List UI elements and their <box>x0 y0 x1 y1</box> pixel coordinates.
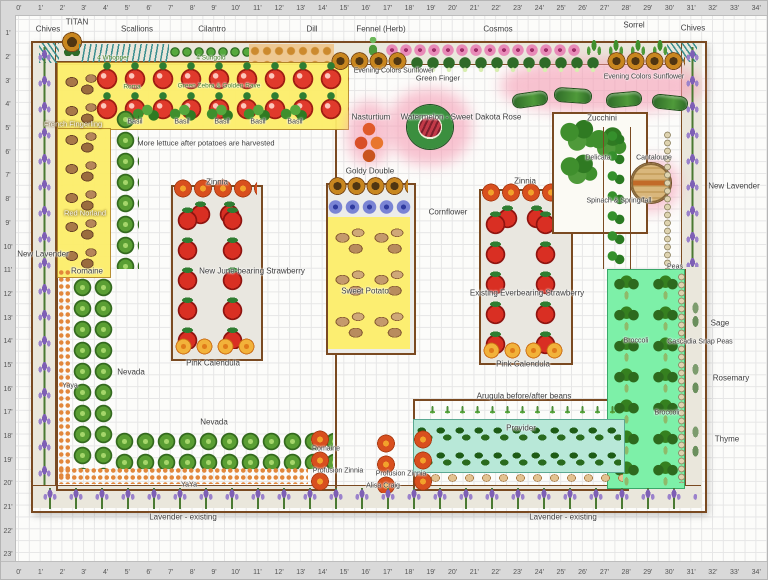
ruler-tick: 26' <box>572 5 594 12</box>
ruler-tick: 24' <box>529 569 551 576</box>
ruler-tick: 18' <box>1 425 15 449</box>
label-sorrel: Sorrel <box>623 21 644 30</box>
label-alisa-craig: Alisa Craig <box>366 483 400 490</box>
label-basil-2: Basil <box>174 119 189 126</box>
ruler-tick: 11' <box>247 569 269 576</box>
sage-icon[interactable] <box>688 299 703 331</box>
label-dill: Dill <box>306 25 317 34</box>
ruler-tick: 25' <box>550 569 572 576</box>
ruler-tick: 7' <box>1 164 15 188</box>
ruler-tick: 16' <box>355 569 377 576</box>
ruler-tick: 34' <box>745 569 767 576</box>
cornflower-row[interactable] <box>327 198 411 216</box>
ruler-top: 0'1'2'3'4'5'6'7'8'9'10'11'12'13'14'15'16… <box>1 1 768 16</box>
label-basil-3: Basil <box>214 119 229 126</box>
label-new-lavender-right: New Lavender <box>708 182 760 191</box>
ruler-tick: 28' <box>615 569 637 576</box>
label-yaya-vertical: Yaya <box>62 383 77 390</box>
ruler-tick: 32' <box>702 5 724 12</box>
ruler-tick: 20' <box>1 472 15 496</box>
label-green-finger: Green Finger <box>416 74 460 83</box>
strawberry-left-col-a[interactable] <box>173 203 202 349</box>
label-cosmos: Cosmos <box>483 25 512 34</box>
label-romaine-bottom: Romaine <box>312 446 340 453</box>
ruler-tick: 34' <box>745 5 767 12</box>
ruler-tick: 5' <box>116 5 138 12</box>
label-june-strawberry: New June-bearing Strawberry <box>199 267 305 276</box>
label-romaine-left: Romaine <box>71 267 103 276</box>
snap-pea-trellis[interactable] <box>677 273 685 483</box>
carrot-column-yaya[interactable] <box>58 269 71 479</box>
ruler-tick: 17' <box>377 5 399 12</box>
ruler-tick: 27' <box>594 569 616 576</box>
label-nevada-horizontal: Nevada <box>200 418 228 427</box>
label-cascadia-snap-peas: Cascadia Snap Peas <box>667 339 732 346</box>
onion-row-alisa-craig[interactable] <box>427 469 623 487</box>
ruler-tick: 22' <box>485 5 507 12</box>
ruler-tick: 3' <box>73 569 95 576</box>
label-nasturtium: Nasturtium <box>352 113 391 122</box>
ruler-tick: 21' <box>463 569 485 576</box>
label-tomato-count-1: 4 Whopper <box>97 55 129 62</box>
ruler-tick: 4' <box>1 93 15 117</box>
rosemary-icon[interactable] <box>688 357 703 401</box>
garden-planner-canvas: 0'1'2'3'4'5'6'7'8'9'10'11'12'13'14'15'16… <box>0 0 768 580</box>
ruler-tick: 7' <box>160 5 182 12</box>
ruler-tick: 15' <box>333 5 355 12</box>
ruler-tick: 6' <box>1 140 15 164</box>
ruler-tick: 32' <box>702 569 724 576</box>
label-peas: Peas <box>667 264 683 271</box>
ruler-tick: 14' <box>1 330 15 354</box>
ruler-tick: 14' <box>312 5 334 12</box>
ruler-tick: 6' <box>138 569 160 576</box>
label-new-lavender-left: New Lavender <box>17 250 69 259</box>
ruler-tick: 25' <box>550 5 572 12</box>
ruler-tick: 2' <box>1 46 15 70</box>
label-fennel: Fennel (Herb) <box>356 25 405 34</box>
lavender-row-right[interactable] <box>682 47 703 267</box>
ruler-tick: 17' <box>377 569 399 576</box>
label-zucchini: Zucchini <box>587 114 617 123</box>
ruler-tick: 18' <box>398 569 420 576</box>
ruler-tick: 31' <box>680 569 702 576</box>
ruler-tick: 31' <box>680 5 702 12</box>
label-tomato-var-1: Roma <box>123 84 140 91</box>
ruler-tick: 22' <box>485 569 507 576</box>
zinnia-column-1[interactable] <box>310 429 330 491</box>
pea-trellis-column[interactable] <box>663 131 673 269</box>
label-sage: Sage <box>711 319 730 328</box>
ruler-tick: 13' <box>290 5 312 12</box>
ruler-tick: 24' <box>529 5 551 12</box>
ruler-tick: 3' <box>1 69 15 93</box>
label-lavender-existing-right: Lavender - existing <box>529 513 597 522</box>
ruler-tick: 4' <box>95 569 117 576</box>
potato-column[interactable] <box>57 71 105 269</box>
ruler-tick: 27' <box>594 5 616 12</box>
label-chives-right: Chives <box>681 24 705 33</box>
ruler-tick: 0' <box>8 5 30 12</box>
arugula-row[interactable] <box>425 401 625 419</box>
calendula-row-c[interactable] <box>481 342 567 359</box>
ruler-tick: 26' <box>572 569 594 576</box>
label-goldy-double: Goldy Double <box>346 167 394 176</box>
ruler-tick: 19' <box>1 448 15 472</box>
lettuce-l-horizontal[interactable] <box>114 431 333 469</box>
ruler-tick: 9' <box>203 5 225 12</box>
zucchini-fruit-icon[interactable] <box>555 88 592 103</box>
lettuce-column[interactable] <box>115 109 139 269</box>
ruler-tick: 8' <box>1 188 15 212</box>
ruler-tick: 16' <box>355 5 377 12</box>
label-watermelon: Watermelon - Sweet Dakota Rose <box>401 113 522 122</box>
lettuce-l-vertical[interactable] <box>72 277 114 469</box>
ruler-tick: 13' <box>290 569 312 576</box>
thyme-icon[interactable] <box>688 419 703 465</box>
ruler-tick: 23' <box>507 569 529 576</box>
ruler-tick: 23' <box>1 543 15 561</box>
ruler-tick: 10' <box>225 5 247 12</box>
label-sunflower-right: Evening Colors Sunflower <box>604 74 685 81</box>
ruler-tick: 8' <box>182 5 204 12</box>
ruler-tick: 1' <box>30 569 52 576</box>
label-yaya-horizontal: YaYa <box>181 482 197 489</box>
ruler-tick: 18' <box>398 5 420 12</box>
label-basil-5: Basil <box>287 119 302 126</box>
label-broccoli-2: Broccoli <box>655 410 680 417</box>
ruler-tick: 30' <box>659 569 681 576</box>
label-zinnia-a: Zinnia <box>206 178 228 187</box>
label-chives-left: Chives <box>36 25 60 34</box>
label-broccoli-1: Broccoli <box>624 338 649 345</box>
label-tomato-var-2: Green Zebra & Golden Rave <box>178 83 261 90</box>
ruler-tick: 12' <box>268 5 290 12</box>
zinnia-column-3[interactable] <box>413 429 434 491</box>
ruler-tick: 8' <box>182 569 204 576</box>
ruler-tick: 30' <box>659 5 681 12</box>
label-sweet-potato: Sweet Potato <box>341 287 389 296</box>
label-spinach-note: Spinach & Spring/fall <box>587 198 652 205</box>
label-provider: Provider <box>506 424 536 433</box>
label-zinnia-c: Zinnia <box>514 177 536 186</box>
label-cantaloupe: Cantaloupe <box>636 155 672 162</box>
ruler-tick: 5' <box>1 117 15 141</box>
ruler-tick: 2' <box>51 569 73 576</box>
label-cilantro: Cilantro <box>198 25 226 34</box>
ruler-tick: 0' <box>8 569 30 576</box>
ruler-tick: 33' <box>724 5 746 12</box>
label-pink-calendula-a: Pink Calendula <box>186 359 240 368</box>
goldy-double-row[interactable] <box>328 176 408 197</box>
ruler-tick: 10' <box>1 235 15 259</box>
ruler-tick: 10' <box>225 569 247 576</box>
ruler-bottom: 0'1'2'3'4'5'6'7'8'9'10'11'12'13'14'15'16… <box>1 561 768 580</box>
ruler-tick: 12' <box>268 569 290 576</box>
ruler-tick: 20' <box>442 5 464 12</box>
label-lavender-existing-left: Lavender - existing <box>149 513 217 522</box>
ruler-tick: 4' <box>95 5 117 12</box>
label-cornflower: Cornflower <box>429 208 468 217</box>
ruler-tick: 29' <box>637 569 659 576</box>
strawberry-right-col-a[interactable] <box>218 203 247 349</box>
ruler-tick: 7' <box>160 569 182 576</box>
label-pink-calendula-c: Pink Calendula <box>496 360 550 369</box>
ruler-tick: 11' <box>247 5 269 12</box>
ruler-tick: 20' <box>442 569 464 576</box>
label-basil-4: Basil <box>250 119 265 126</box>
lavender-row-left[interactable] <box>34 47 55 485</box>
label-delicata: Delicata <box>585 155 610 162</box>
lavender-row-bottom[interactable] <box>37 488 697 509</box>
ruler-tick: 12' <box>1 283 15 307</box>
ruler-tick: 19' <box>420 569 442 576</box>
sweet-potato-grid[interactable] <box>330 221 408 347</box>
ruler-tick: 15' <box>333 569 355 576</box>
ruler-tick: 33' <box>724 569 746 576</box>
ruler-tick: 1' <box>30 5 52 12</box>
label-more-lettuce-note: More lettuce after potatoes are harveste… <box>137 139 274 148</box>
ruler-tick: 5' <box>116 569 138 576</box>
ruler-tick: 14' <box>312 569 334 576</box>
ruler-tick: 15' <box>1 354 15 378</box>
ruler-tick: 22' <box>1 519 15 543</box>
ruler-tick: 23' <box>507 5 529 12</box>
label-titan: TITAN <box>66 18 89 27</box>
ruler-tick: 21' <box>1 496 15 520</box>
label-rosemary: Rosemary <box>713 374 749 383</box>
ruler-tick: 17' <box>1 401 15 425</box>
ruler-tick: 2' <box>51 5 73 12</box>
ruler-left: 1'2'3'4'5'6'7'8'9'10'11'12'13'14'15'16'1… <box>1 15 16 561</box>
ruler-tick: 1' <box>1 22 15 46</box>
ruler-tick: 11' <box>1 259 15 283</box>
ruler-tick: 16' <box>1 377 15 401</box>
ruler-tick: 28' <box>615 5 637 12</box>
ruler-tick: 3' <box>73 5 95 12</box>
label-arugula-note: Arugula before/after beans <box>477 392 572 401</box>
label-profusion-zinnia-2: Profusion Zinnia <box>376 471 427 478</box>
label-thyme: Thyme <box>715 435 739 444</box>
strawberry-left-col-c[interactable] <box>481 207 510 355</box>
ruler-tick: 29' <box>637 5 659 12</box>
label-nevada-vertical: Nevada <box>117 368 145 377</box>
label-tomato-count-2: 4 Sungold <box>196 55 225 62</box>
ruler-tick: 9' <box>1 212 15 236</box>
label-profusion-zinnia-1: Profusion Zinnia <box>313 468 364 475</box>
label-french-fingerling: French Fingerling <box>44 120 102 129</box>
ruler-tick: 21' <box>463 5 485 12</box>
label-red-norland: Red Norland <box>64 209 106 218</box>
ruler-tick: 6' <box>138 5 160 12</box>
sunflower-row-right[interactable] <box>607 51 685 72</box>
cucumber-row[interactable] <box>409 55 599 74</box>
label-everbearing-strawberry: Existing Everbearing Strawberry <box>470 289 584 298</box>
label-scallions: Scallions <box>121 25 153 34</box>
dill-row[interactable] <box>249 44 334 62</box>
nasturtium-icon[interactable] <box>351 119 387 165</box>
calendula-row-a[interactable] <box>173 338 257 355</box>
label-basil-1: Basil <box>127 119 142 126</box>
ruler-tick: 19' <box>420 5 442 12</box>
ruler-tick: 9' <box>203 569 225 576</box>
ruler-tick: 13' <box>1 306 15 330</box>
